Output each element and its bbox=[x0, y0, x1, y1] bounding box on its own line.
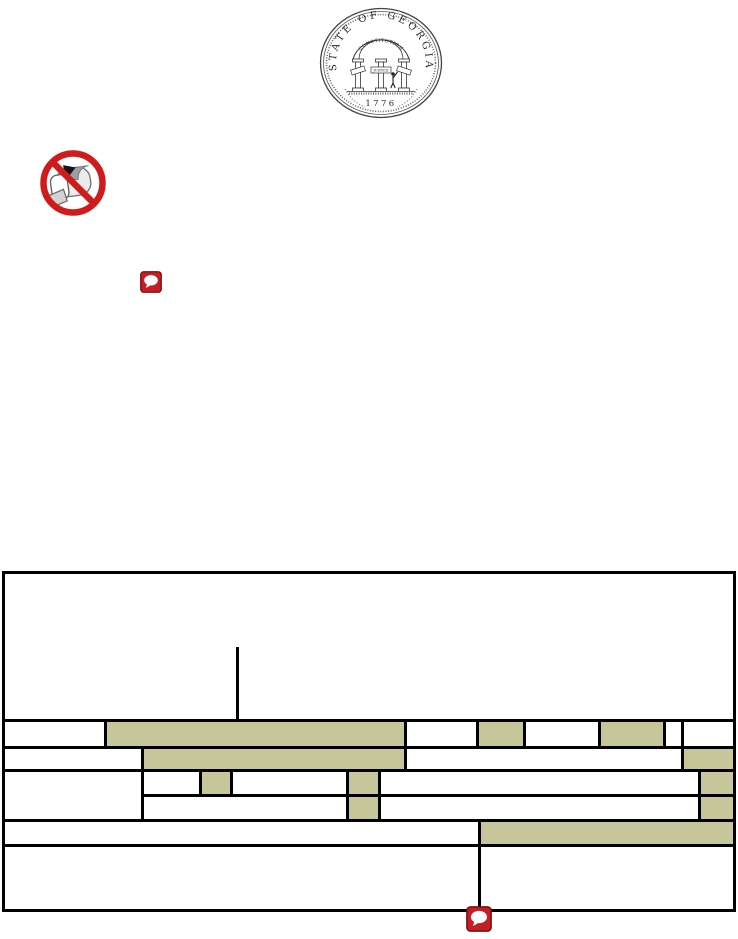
label-cell bbox=[5, 722, 107, 746]
table-row bbox=[5, 847, 733, 909]
no-mail-prohibition-icon bbox=[37, 147, 109, 219]
highlighted-field-cell[interactable] bbox=[701, 797, 733, 819]
highlighted-field-cell[interactable] bbox=[349, 772, 381, 794]
label-cell bbox=[144, 772, 202, 794]
table-row bbox=[5, 749, 733, 772]
highlighted-field-cell[interactable] bbox=[601, 722, 666, 746]
header-cell bbox=[5, 574, 733, 719]
table-row bbox=[5, 722, 733, 749]
label-cell bbox=[381, 772, 701, 794]
label-cell bbox=[144, 797, 349, 819]
comment-annotation-icon[interactable] bbox=[466, 906, 492, 932]
label-cell-tall bbox=[5, 772, 144, 819]
georgia-state-seal-icon: STATE OF GEORGIA CONSTITUTION JUSTICE bbox=[318, 6, 444, 120]
nested-rows bbox=[144, 772, 733, 819]
highlighted-field-cell[interactable] bbox=[107, 722, 407, 746]
table-row bbox=[144, 772, 733, 797]
label-cell bbox=[407, 722, 479, 746]
highlighted-field-cell[interactable] bbox=[144, 749, 407, 769]
highlighted-field-cell[interactable] bbox=[202, 772, 233, 794]
highlighted-field-cell[interactable] bbox=[701, 772, 733, 794]
table-header-cell bbox=[5, 574, 733, 722]
table-row bbox=[5, 822, 733, 847]
label-cell bbox=[684, 722, 733, 746]
highlighted-field-cell[interactable] bbox=[481, 822, 733, 844]
highlighted-field-cell[interactable] bbox=[684, 749, 733, 769]
seal-year: 1776 bbox=[365, 99, 396, 109]
comment-annotation-icon[interactable] bbox=[140, 271, 162, 293]
label-cell bbox=[5, 822, 481, 844]
signature-area-cell bbox=[5, 847, 481, 909]
label-cell bbox=[381, 797, 701, 819]
table-row-group bbox=[5, 772, 733, 822]
document-page: STATE OF GEORGIA CONSTITUTION JUSTICE bbox=[0, 0, 738, 939]
table-row bbox=[144, 797, 733, 819]
label-cell bbox=[233, 772, 349, 794]
label-cell bbox=[407, 749, 684, 769]
label-cell bbox=[666, 722, 684, 746]
highlighted-field-cell[interactable] bbox=[479, 722, 526, 746]
label-cell bbox=[526, 722, 601, 746]
signature-area-cell bbox=[481, 847, 733, 909]
label-cell bbox=[5, 749, 144, 769]
seal-banner-text: JUSTICE bbox=[372, 69, 389, 73]
partial-vertical-divider bbox=[236, 647, 239, 719]
form-table bbox=[2, 571, 736, 912]
highlighted-field-cell[interactable] bbox=[349, 797, 381, 819]
